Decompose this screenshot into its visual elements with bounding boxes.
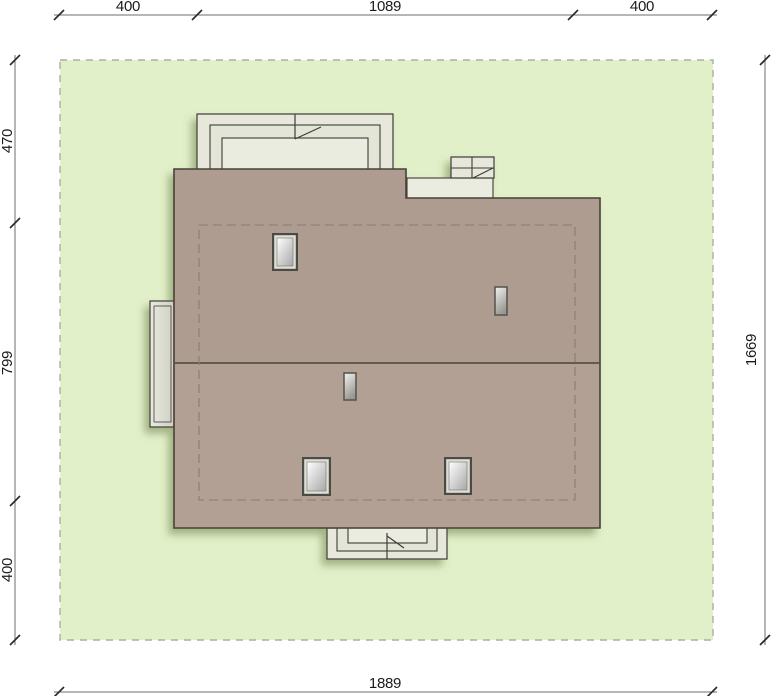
roof-window-large-3 (444, 457, 472, 495)
site-plan-drawing: 400 1089 400 470 799 400 1669 1889 (0, 0, 772, 696)
dim-top-right: 400 (630, 0, 654, 15)
dim-left-lower: 400 (0, 558, 16, 582)
entrance-stairs-top (197, 114, 393, 170)
terrace-left (150, 301, 174, 427)
roof-window-large-1 (272, 233, 298, 271)
dim-top-middle: 1089 (369, 0, 401, 15)
dim-right-total: 1669 (743, 334, 760, 366)
roof-window-small-1 (495, 287, 507, 315)
stairs-bottom (327, 528, 447, 559)
chimney (451, 157, 494, 178)
site-plan-canvas: 400 1089 400 470 799 400 1669 1889 (0, 0, 772, 696)
roof-lower-face (175, 363, 599, 527)
dim-bottom-total: 1889 (369, 675, 401, 692)
roof-window-large-2 (302, 457, 331, 496)
roof-window-small-2 (344, 373, 356, 400)
dim-top-left: 400 (116, 0, 140, 15)
dim-left-upper: 470 (0, 129, 16, 153)
side-porch-right (407, 178, 493, 199)
dim-left-middle: 799 (0, 351, 16, 375)
